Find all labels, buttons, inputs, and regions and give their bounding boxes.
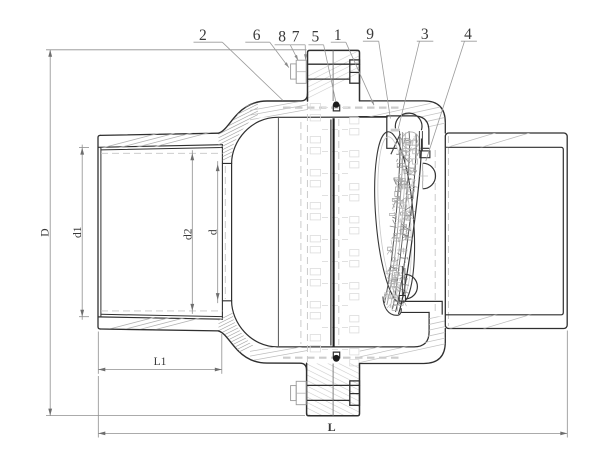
- svg-text:8: 8: [278, 29, 286, 46]
- svg-text:L: L: [328, 420, 336, 434]
- svg-text:1: 1: [334, 27, 342, 44]
- svg-text:4: 4: [464, 26, 472, 43]
- svg-text:L1: L1: [154, 356, 167, 368]
- svg-text:5: 5: [312, 29, 320, 46]
- svg-text:3: 3: [421, 26, 429, 43]
- svg-text:d: d: [208, 229, 220, 235]
- svg-text:d1: d1: [72, 226, 84, 238]
- svg-text:2: 2: [199, 27, 207, 44]
- svg-text:D: D: [40, 228, 52, 236]
- svg-text:d2: d2: [182, 228, 194, 240]
- svg-text:6: 6: [253, 27, 261, 44]
- svg-text:9: 9: [366, 26, 374, 43]
- svg-text:7: 7: [292, 29, 300, 46]
